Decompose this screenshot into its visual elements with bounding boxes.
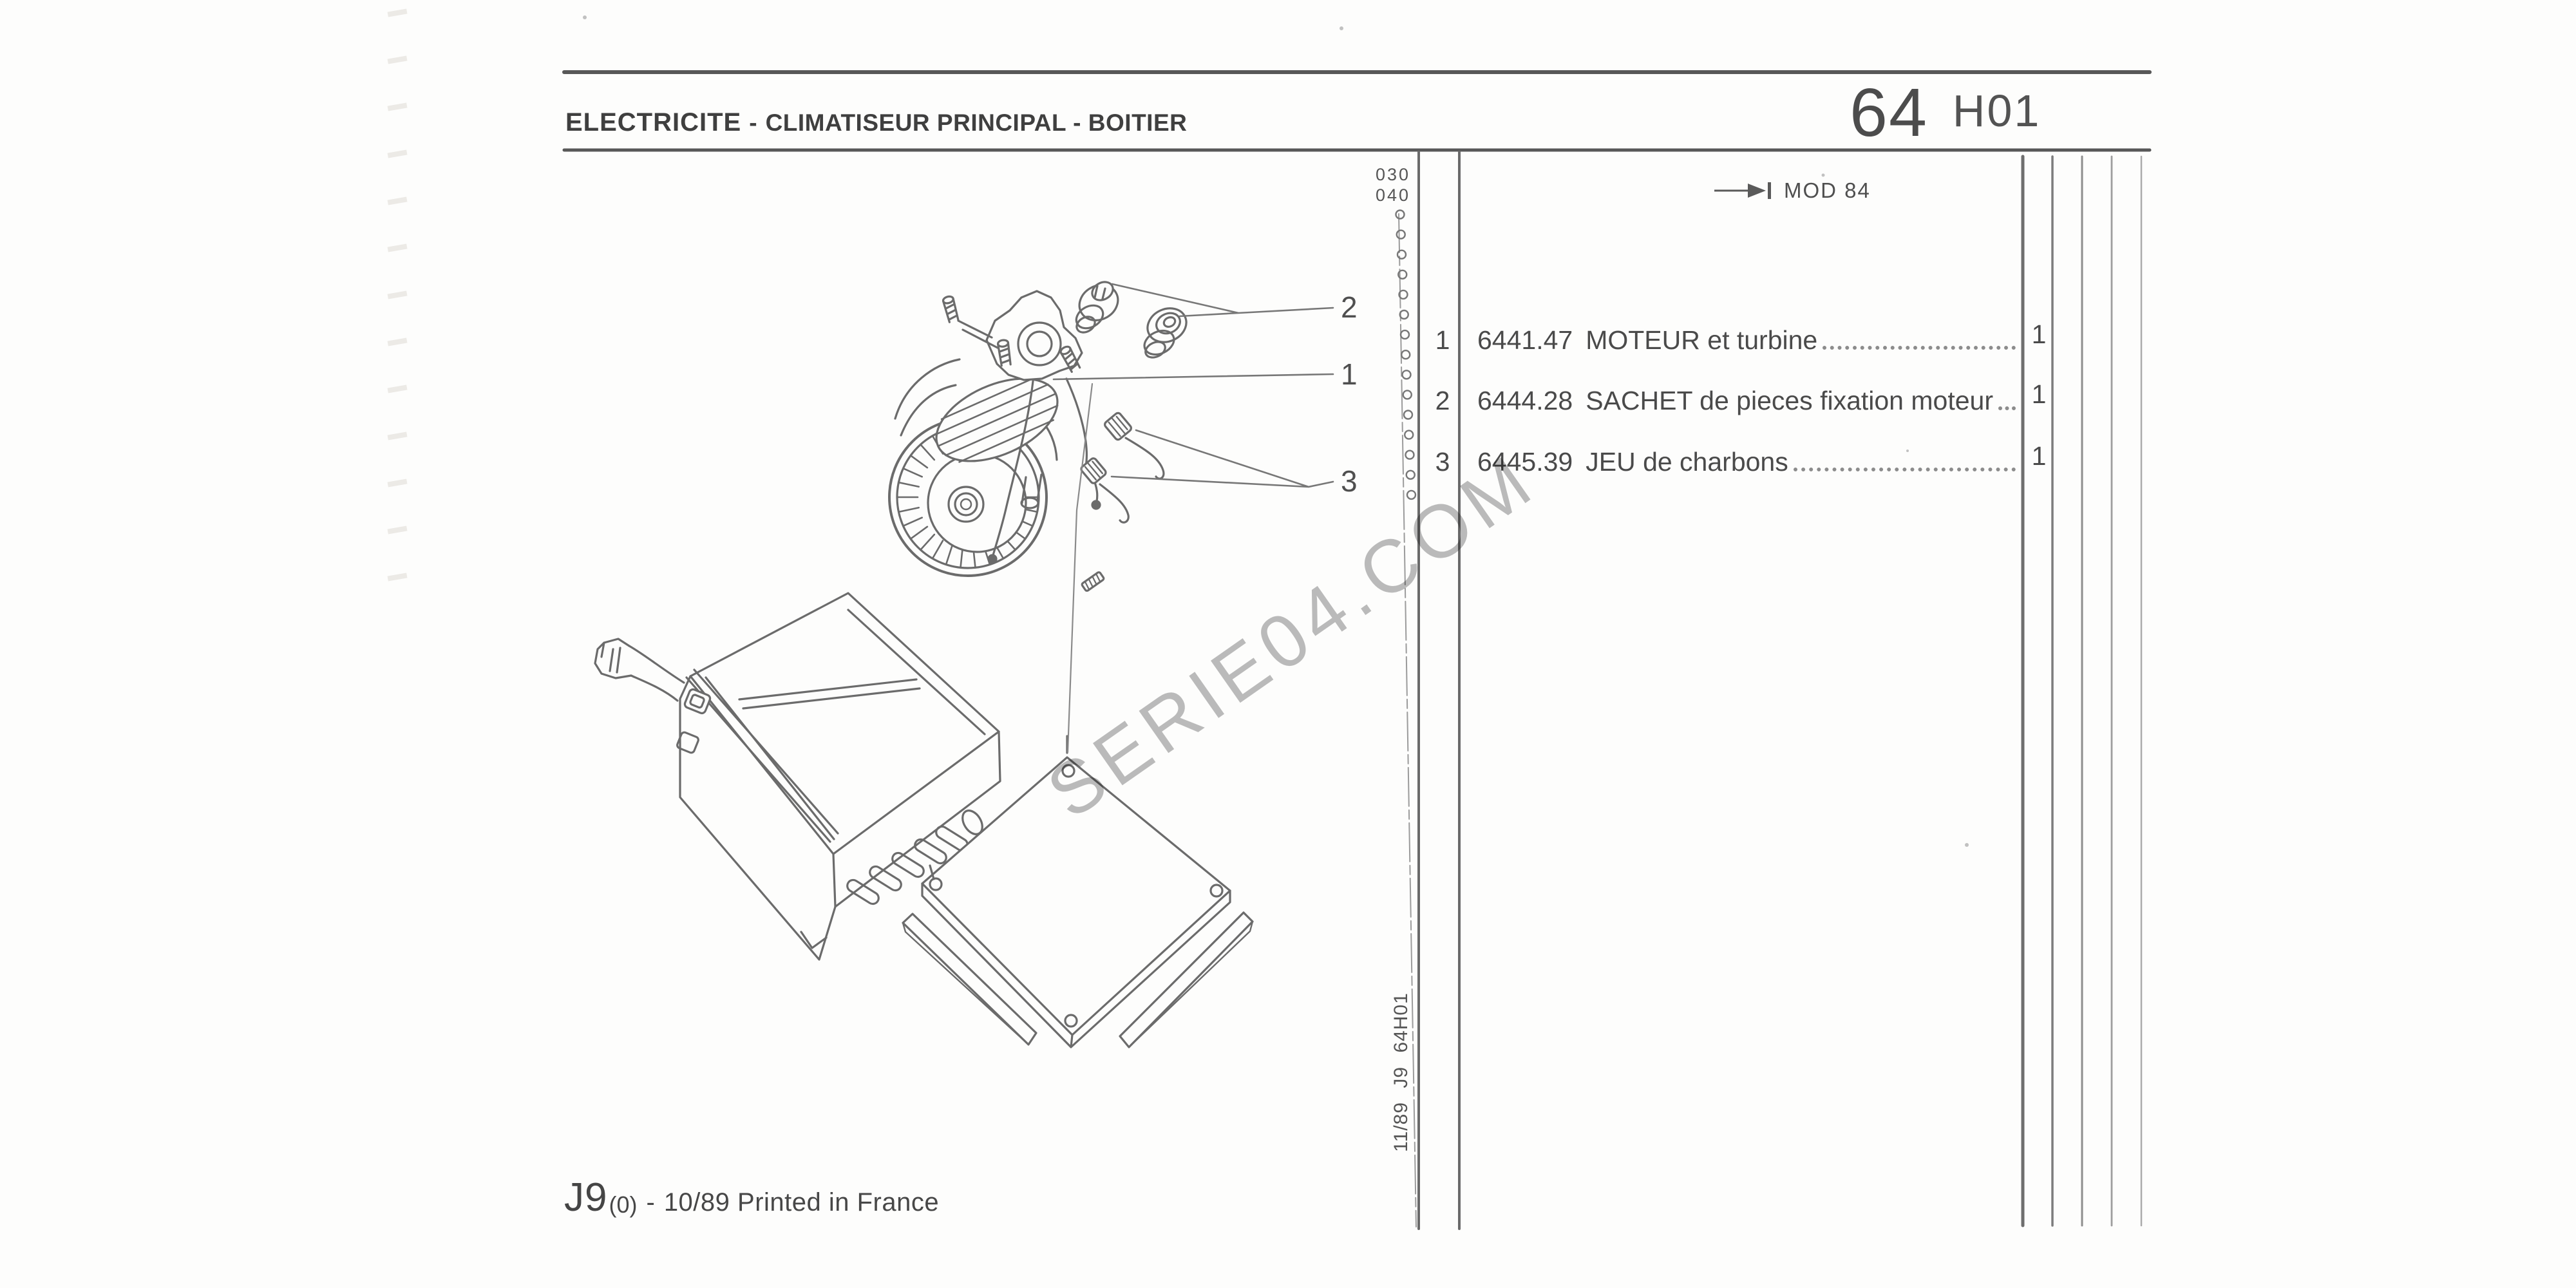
scan-specks [583, 15, 1969, 847]
table-row: 6441.47 MOTEUR et turbine [1477, 325, 2017, 355]
mounting-stud [942, 296, 959, 323]
mod-arrow-icon [1714, 180, 1776, 201]
table-ref: 1 [1425, 325, 1461, 355]
drop-line [1068, 384, 1092, 752]
callout-line-1 [1054, 374, 1333, 379]
blower-motor-and-wheel [889, 291, 1100, 576]
revision-code-040: 040 [1352, 185, 1410, 205]
section-subtitle: CLIMATISEUR PRINCIPAL - BOITIER [766, 109, 1188, 136]
footer-variant: (0) [609, 1191, 637, 1218]
mounting-grommets [1072, 278, 1192, 361]
revision-code-030: 030 [1352, 165, 1410, 185]
footer-separator: - [646, 1188, 654, 1217]
page-code: H01 [1953, 88, 2041, 133]
housing-frame [595, 593, 1000, 960]
catalog-page: ELECTRICITE-CLIMATISEUR PRINCIPAL - BOIT… [0, 0, 2576, 1288]
dotted-leader [1823, 346, 2016, 350]
spine-reference: 11/89 J9 64H01 [1390, 989, 1412, 1156]
callout-label-2: 2 [1341, 291, 1358, 323]
part-label: MOTEUR et turbine [1586, 325, 1817, 355]
scan-smudges [388, 8, 408, 581]
callout-label-3: 3 [1341, 465, 1358, 497]
page-title: ELECTRICITE-CLIMATISEUR PRINCIPAL - BOIT… [565, 108, 1187, 137]
callout-line-3 [1112, 430, 1333, 487]
small-screw [1081, 572, 1104, 592]
callout-label-1: 1 [1341, 358, 1358, 390]
mod-label: MOD 84 [1784, 178, 1871, 203]
dotted-leader [1998, 406, 2016, 410]
part-qty: 1 [2026, 319, 2052, 350]
title-separator: - [749, 109, 757, 136]
dotted-leader [1794, 468, 2016, 471]
mod-note: MOD 84 [1714, 178, 1871, 204]
footer-printed-note: 10/89 Printed in France [664, 1188, 939, 1217]
binder-hole-column [1396, 211, 1416, 499]
part-code: 6441.47 [1477, 325, 1573, 355]
page-number: 64 [1850, 79, 1928, 147]
lever-arm [595, 639, 684, 701]
footer-model: J9 [564, 1175, 607, 1220]
part-qty: 1 [2026, 379, 2052, 410]
callout-line-2 [1112, 284, 1333, 316]
footer: J9 (0) - 10/89 Printed in France [564, 1175, 939, 1220]
section-title: ELECTRICITE [565, 108, 741, 137]
table-ref: 2 [1425, 385, 1461, 416]
page-number-block: 64 H01 [1850, 79, 2041, 147]
part-qty: 1 [2026, 440, 2052, 471]
